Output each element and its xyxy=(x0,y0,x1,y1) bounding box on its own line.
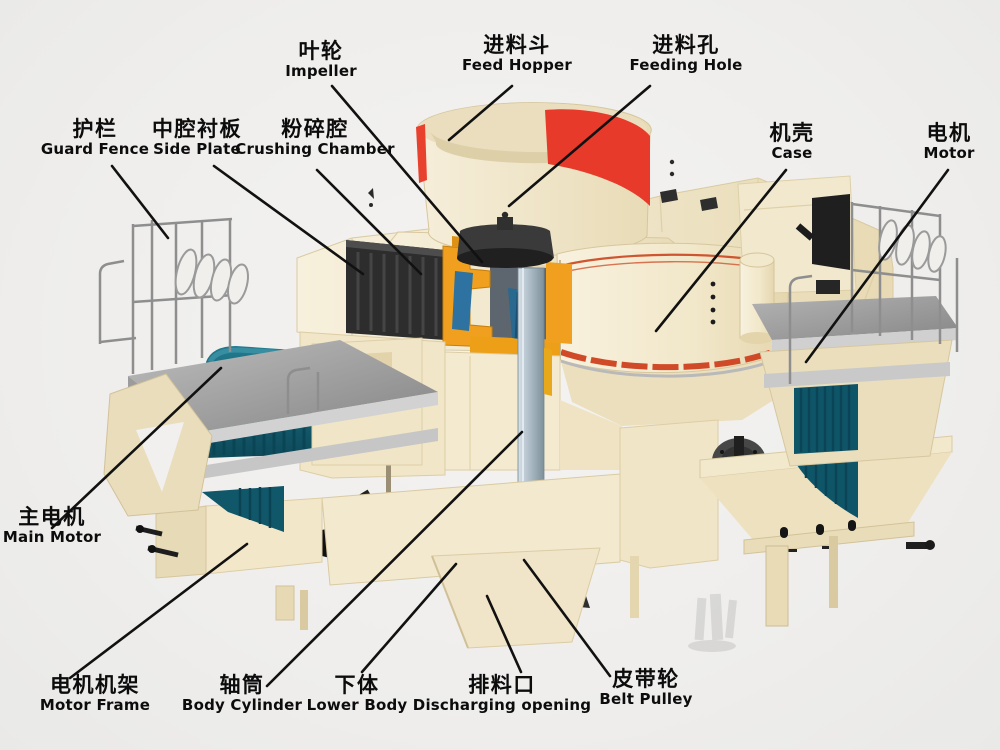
label-motor-frame-en: Motor Frame xyxy=(40,698,150,714)
motor-part xyxy=(812,194,850,270)
label-guard-fence: 护栏 Guard Fence xyxy=(41,118,149,158)
label-feeding-hole-zh: 进料孔 xyxy=(629,34,742,56)
label-crushing-chamber: 粉碎腔 Crushing Chamber xyxy=(235,118,394,158)
label-feed-hopper-zh: 进料斗 xyxy=(462,34,572,56)
label-discharging-opening: 排料口 Discharging opening xyxy=(413,674,591,714)
discharge-cone xyxy=(432,548,600,648)
label-main-motor: 主电机 Main Motor xyxy=(3,506,101,546)
label-impeller: 叶轮 Impeller xyxy=(285,40,357,80)
label-main-motor-zh: 主电机 xyxy=(3,506,101,528)
faint-marks xyxy=(688,594,737,652)
label-lower-body: 下体 Lower Body xyxy=(307,674,408,714)
label-motor-en: Motor xyxy=(923,146,974,162)
leader-guard-fence xyxy=(112,166,168,238)
label-discharging-opening-en: Discharging opening xyxy=(413,698,591,714)
label-case-en: Case xyxy=(770,146,815,162)
label-body-cylinder: 轴筒 Body Cylinder xyxy=(182,674,302,714)
label-side-plate: 中腔衬板 Side Plate xyxy=(152,118,242,158)
label-side-plate-zh: 中腔衬板 xyxy=(152,118,242,140)
label-belt-pulley: 皮带轮 Belt Pulley xyxy=(599,668,692,708)
label-guard-fence-en: Guard Fence xyxy=(41,142,149,158)
label-main-motor-en: Main Motor xyxy=(3,530,101,546)
label-case: 机壳 Case xyxy=(770,122,815,162)
label-motor-frame-zh: 电机机架 xyxy=(40,674,150,696)
rail-coils-left xyxy=(172,248,252,306)
label-impeller-en: Impeller xyxy=(285,64,357,80)
label-guard-fence-zh: 护栏 xyxy=(41,118,149,140)
label-side-plate-en: Side Plate xyxy=(152,142,242,158)
label-lower-body-en: Lower Body xyxy=(307,698,408,714)
label-body-cylinder-en: Body Cylinder xyxy=(182,698,302,714)
label-motor-frame: 电机机架 Motor Frame xyxy=(40,674,150,714)
label-belt-pulley-en: Belt Pulley xyxy=(599,692,692,708)
label-belt-pulley-zh: 皮带轮 xyxy=(599,668,692,690)
diagram-canvas: 叶轮 Impeller 进料斗 Feed Hopper 进料孔 Feeding … xyxy=(0,0,1000,750)
label-crushing-chamber-en: Crushing Chamber xyxy=(235,142,394,158)
leader-side-plate xyxy=(214,166,363,274)
label-lower-body-zh: 下体 xyxy=(307,674,408,696)
label-feed-hopper: 进料斗 Feed Hopper xyxy=(462,34,572,74)
label-motor: 电机 Motor xyxy=(923,122,974,162)
motor-frame-part xyxy=(156,506,206,578)
label-feeding-hole: 进料孔 Feeding Hole xyxy=(629,34,742,74)
machine-illustration xyxy=(0,0,1000,750)
label-body-cylinder-zh: 轴筒 xyxy=(182,674,302,696)
label-discharging-opening-zh: 排料口 xyxy=(413,674,591,696)
label-crushing-chamber-zh: 粉碎腔 xyxy=(235,118,394,140)
right-platform-assembly xyxy=(738,176,958,466)
label-impeller-zh: 叶轮 xyxy=(285,40,357,62)
label-motor-zh: 电机 xyxy=(923,122,974,144)
label-feed-hopper-en: Feed Hopper xyxy=(462,58,572,74)
label-feeding-hole-en: Feeding Hole xyxy=(629,58,742,74)
label-case-zh: 机壳 xyxy=(770,122,815,144)
